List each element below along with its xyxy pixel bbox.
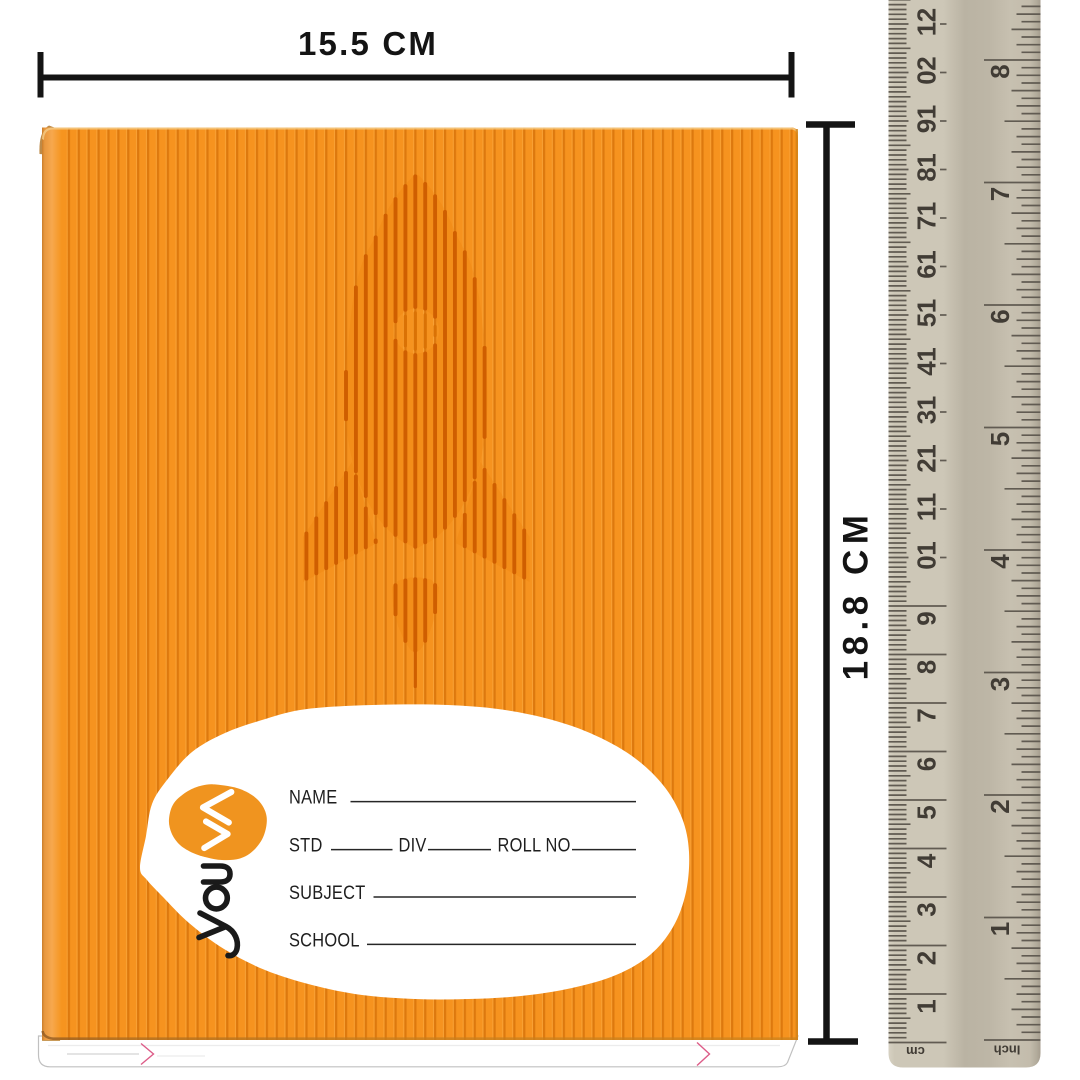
svg-text:SUBJECT: SUBJECT: [289, 882, 366, 904]
svg-text:4: 4: [912, 853, 942, 868]
svg-text:1: 1: [912, 396, 942, 410]
svg-text:2: 2: [912, 458, 942, 472]
svg-text:0: 0: [912, 70, 942, 84]
svg-text:8: 8: [912, 660, 942, 674]
svg-text:1: 1: [912, 202, 942, 216]
svg-text:7: 7: [912, 216, 942, 230]
svg-text:2: 2: [912, 56, 942, 70]
svg-text:4: 4: [912, 361, 942, 376]
svg-text:8: 8: [912, 167, 942, 181]
svg-text:cm: cm: [906, 1044, 925, 1059]
svg-text:7: 7: [912, 708, 942, 722]
svg-text:1: 1: [912, 347, 942, 361]
svg-text:18.8 CM: 18.8 CM: [837, 510, 876, 681]
svg-text:1: 1: [912, 541, 942, 555]
svg-text:1: 1: [912, 250, 942, 264]
svg-text:2: 2: [912, 8, 942, 22]
svg-text:9: 9: [912, 611, 942, 625]
svg-text:3: 3: [912, 902, 942, 916]
svg-text:NAME: NAME: [289, 786, 337, 808]
svg-text:1: 1: [912, 507, 942, 521]
svg-text:5: 5: [912, 313, 942, 327]
svg-text:7: 7: [985, 187, 1015, 201]
svg-text:2: 2: [912, 951, 942, 965]
svg-text:ROLL NO: ROLL NO: [498, 834, 571, 856]
svg-text:Inch: Inch: [994, 1043, 1021, 1058]
svg-text:5: 5: [912, 805, 942, 819]
svg-text:9: 9: [912, 119, 942, 133]
svg-text:1: 1: [912, 105, 942, 119]
svg-text:4: 4: [985, 554, 1015, 569]
svg-text:15.5 CM: 15.5 CM: [298, 25, 438, 62]
svg-text:3: 3: [912, 410, 942, 424]
svg-text:3: 3: [985, 677, 1015, 691]
svg-text:5: 5: [985, 432, 1015, 446]
svg-text:1: 1: [912, 153, 942, 167]
svg-text:SCHOOL: SCHOOL: [289, 929, 360, 951]
svg-text:8: 8: [985, 64, 1015, 78]
svg-text:1: 1: [912, 444, 942, 458]
svg-text:1: 1: [985, 922, 1015, 936]
svg-text:DIV: DIV: [399, 834, 427, 856]
svg-text:6: 6: [912, 264, 942, 278]
svg-text:2: 2: [985, 799, 1015, 813]
svg-text:1: 1: [912, 22, 942, 36]
svg-text:6: 6: [985, 309, 1015, 323]
svg-text:1: 1: [912, 299, 942, 313]
svg-text:1: 1: [912, 999, 942, 1013]
svg-text:0: 0: [912, 555, 942, 569]
svg-text:6: 6: [912, 757, 942, 771]
svg-text:1: 1: [912, 493, 942, 507]
svg-text:STD: STD: [289, 834, 323, 856]
